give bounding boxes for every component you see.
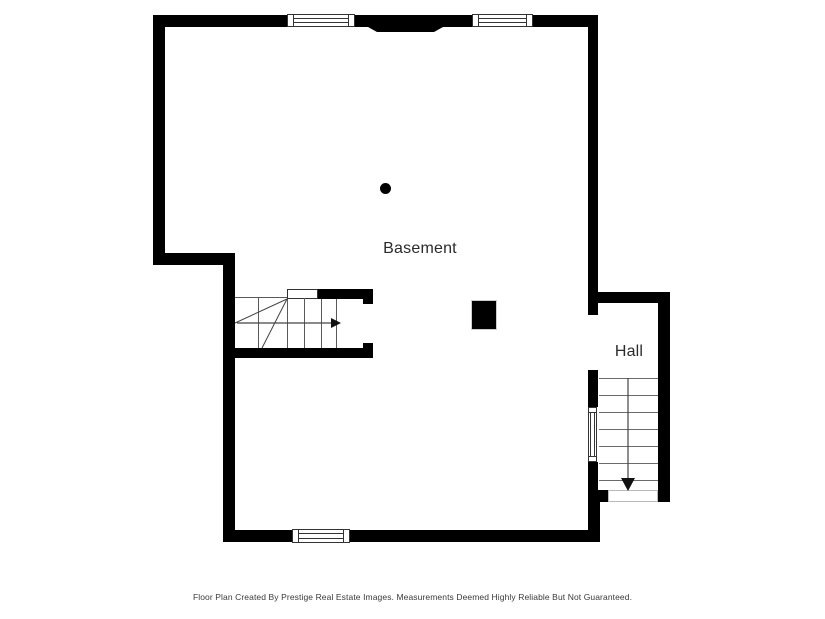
stairs-entry-opening	[287, 289, 318, 299]
stair-tread-line	[599, 463, 658, 464]
stair-tread-line	[599, 480, 658, 481]
stair-tread-line	[321, 299, 322, 348]
wall-left-lower	[223, 253, 235, 542]
stair-winder-line	[262, 299, 287, 348]
hall-wall-bottom-right	[658, 490, 670, 502]
hall-room-label: Hall	[615, 343, 643, 361]
hall-exit-opening	[608, 490, 658, 502]
window-top-left	[287, 14, 355, 27]
stair-wall-top-tab	[363, 299, 373, 304]
stair-tread-line	[336, 299, 337, 348]
stair-tread-line	[258, 297, 259, 348]
stair-winder-line	[235, 299, 287, 323]
stair-tread-line	[599, 446, 658, 447]
structural-column-square	[471, 300, 497, 330]
stair-tread-line	[304, 298, 305, 348]
floor-plan-canvas: Basement Hall Floor Plan Created By Pres…	[0, 0, 825, 619]
wall-left-upper	[153, 15, 165, 265]
window-glass-lines	[479, 18, 526, 23]
window-hall	[588, 407, 597, 462]
support-post-dot	[380, 183, 391, 194]
stair-tread-line	[599, 395, 658, 396]
window-glass-lines	[299, 533, 343, 539]
window-top-right	[472, 14, 533, 27]
window-pane-line	[589, 456, 596, 457]
stair-tread-line	[599, 412, 658, 413]
hall-wall-right	[658, 292, 670, 502]
wall-right-lower	[588, 502, 600, 542]
stair-wall-bottom	[223, 348, 373, 358]
basement-room-label: Basement	[383, 240, 457, 258]
wall-top-bump	[368, 27, 443, 32]
window-pane-line	[348, 15, 349, 26]
stair-tread-line	[599, 378, 658, 379]
stair-wall-top	[318, 289, 373, 299]
stair-tread-line	[287, 299, 288, 348]
window-pane-line	[526, 15, 527, 26]
wall-right-upper	[588, 15, 598, 315]
wall-bottom	[223, 530, 600, 542]
window-glass-lines	[294, 18, 348, 23]
stair-wall-bottom-tab	[363, 343, 373, 348]
wall-right-mid	[588, 370, 598, 407]
disclaimer-text: Floor Plan Created By Prestige Real Esta…	[0, 592, 825, 602]
stair-outline-top	[235, 297, 287, 298]
window-pane-line	[343, 530, 344, 542]
window-glass-lines	[590, 413, 595, 456]
hall-wall-bottom-left	[588, 490, 608, 502]
stair-annotation-layer	[0, 0, 825, 619]
stair-tread-line	[599, 429, 658, 430]
window-bottom	[292, 529, 350, 543]
